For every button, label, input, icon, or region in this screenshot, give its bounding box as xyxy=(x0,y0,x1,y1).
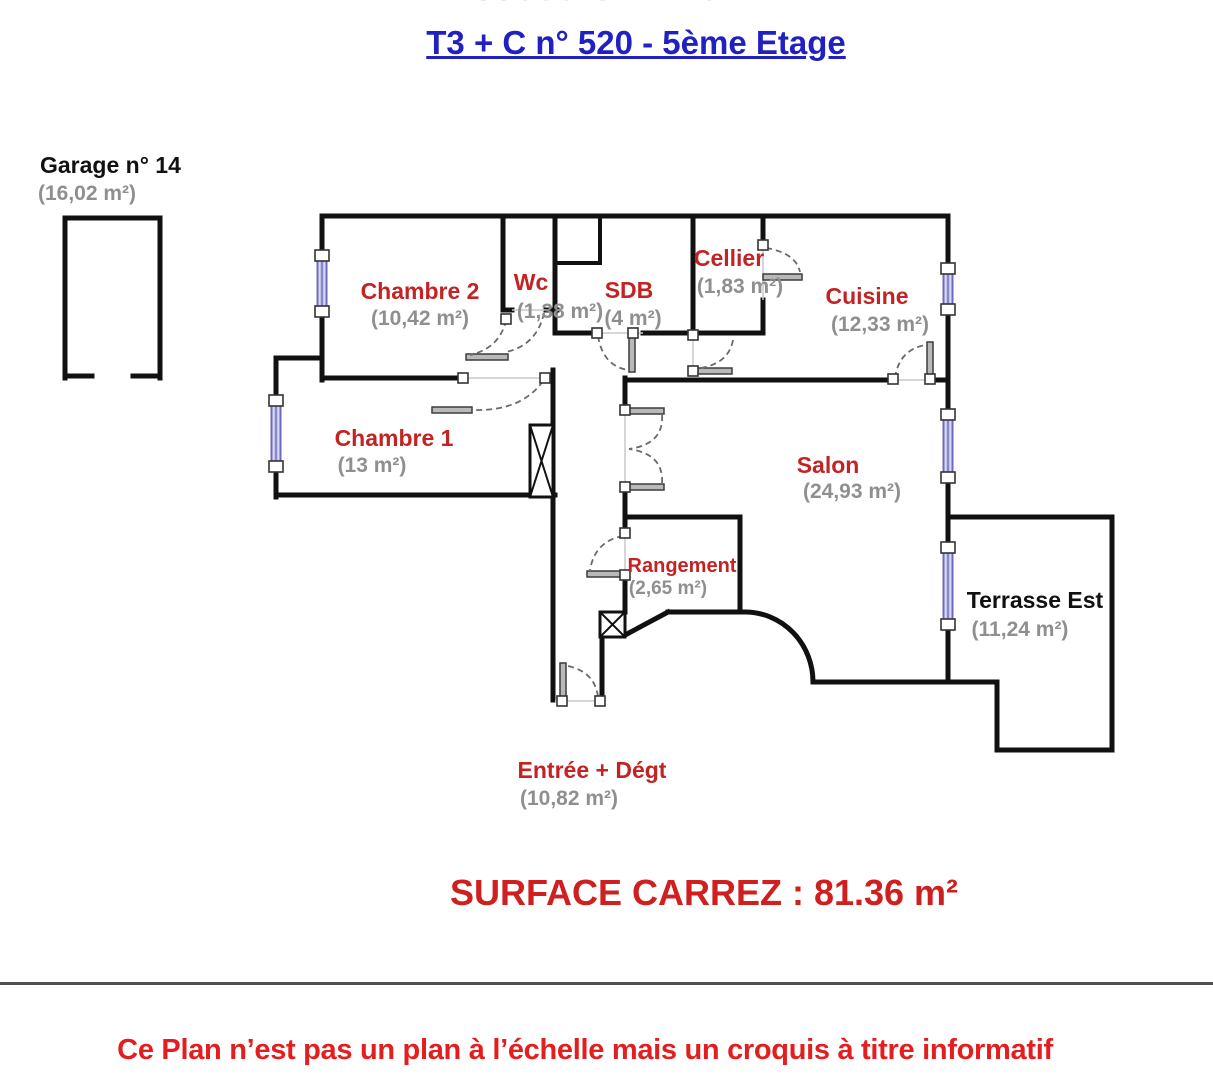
label-salon: Salon xyxy=(797,452,860,478)
disclaimer-text: Ce Plan n’est pas un plan à l’échelle ma… xyxy=(117,1034,1053,1067)
floorplan-drawing: Garage n° 14 (16,02 m²) xyxy=(0,0,1213,1080)
label-wc: Wc xyxy=(514,269,549,295)
garage-outline xyxy=(65,218,160,378)
door-cuisine xyxy=(888,342,935,384)
garage-area: (16,02 m²) xyxy=(38,182,136,205)
window-cuisine xyxy=(941,263,955,315)
area-cuisine: (12,33 m²) xyxy=(831,313,929,336)
door-salon-double xyxy=(620,405,664,492)
label-cuisine: Cuisine xyxy=(825,283,908,309)
area-chambre1: (13 m²) xyxy=(338,454,407,477)
area-cellier: (1,83 m²) xyxy=(697,275,783,298)
door-entrance xyxy=(557,663,605,706)
area-entree: (10,82 m²) xyxy=(520,787,618,810)
window-salon-upper xyxy=(941,409,955,483)
door-chambre2 xyxy=(466,314,511,360)
door-cellier-lower xyxy=(688,330,733,376)
area-terrasse: (11,24 m²) xyxy=(972,618,1069,641)
garage-label: Garage n° 14 xyxy=(40,152,181,178)
label-chambre2: Chambre 2 xyxy=(361,278,480,304)
duct-symbol xyxy=(600,612,625,637)
window-chambre2 xyxy=(315,250,329,317)
separator-line xyxy=(0,982,1213,985)
door-cellier-right xyxy=(758,240,802,280)
room-labels: Chambre 2 (10,42 m²) Wc (1,38 m²) SDB (4… xyxy=(335,245,1104,810)
door-sdb xyxy=(592,328,638,372)
area-chambre2: (10,42 m²) xyxy=(371,307,469,330)
label-entree: Entrée + Dégt xyxy=(518,757,667,783)
technical-shaft xyxy=(555,216,600,263)
door-rangement xyxy=(587,528,630,580)
label-rangement: Rangement xyxy=(628,555,737,577)
floorplan-page: { "page": { "clipped_top_line": "38000 G… xyxy=(0,0,1213,1080)
surface-carrez-total: SURFACE CARREZ : 81.36 m² xyxy=(450,872,958,914)
area-wc: (1,38 m²) xyxy=(517,300,603,323)
label-cellier: Cellier xyxy=(694,245,764,271)
label-chambre1: Chambre 1 xyxy=(335,425,454,451)
label-terrasse: Terrasse Est xyxy=(967,587,1104,613)
window-terrasse xyxy=(941,542,955,630)
closet-symbol xyxy=(530,425,553,497)
area-salon: (24,93 m²) xyxy=(803,480,901,503)
window-chambre1 xyxy=(269,395,283,472)
label-sdb: SDB xyxy=(605,277,654,303)
area-sdb: (4 m²) xyxy=(604,307,661,330)
area-rangement: (2,65 m²) xyxy=(629,578,707,599)
